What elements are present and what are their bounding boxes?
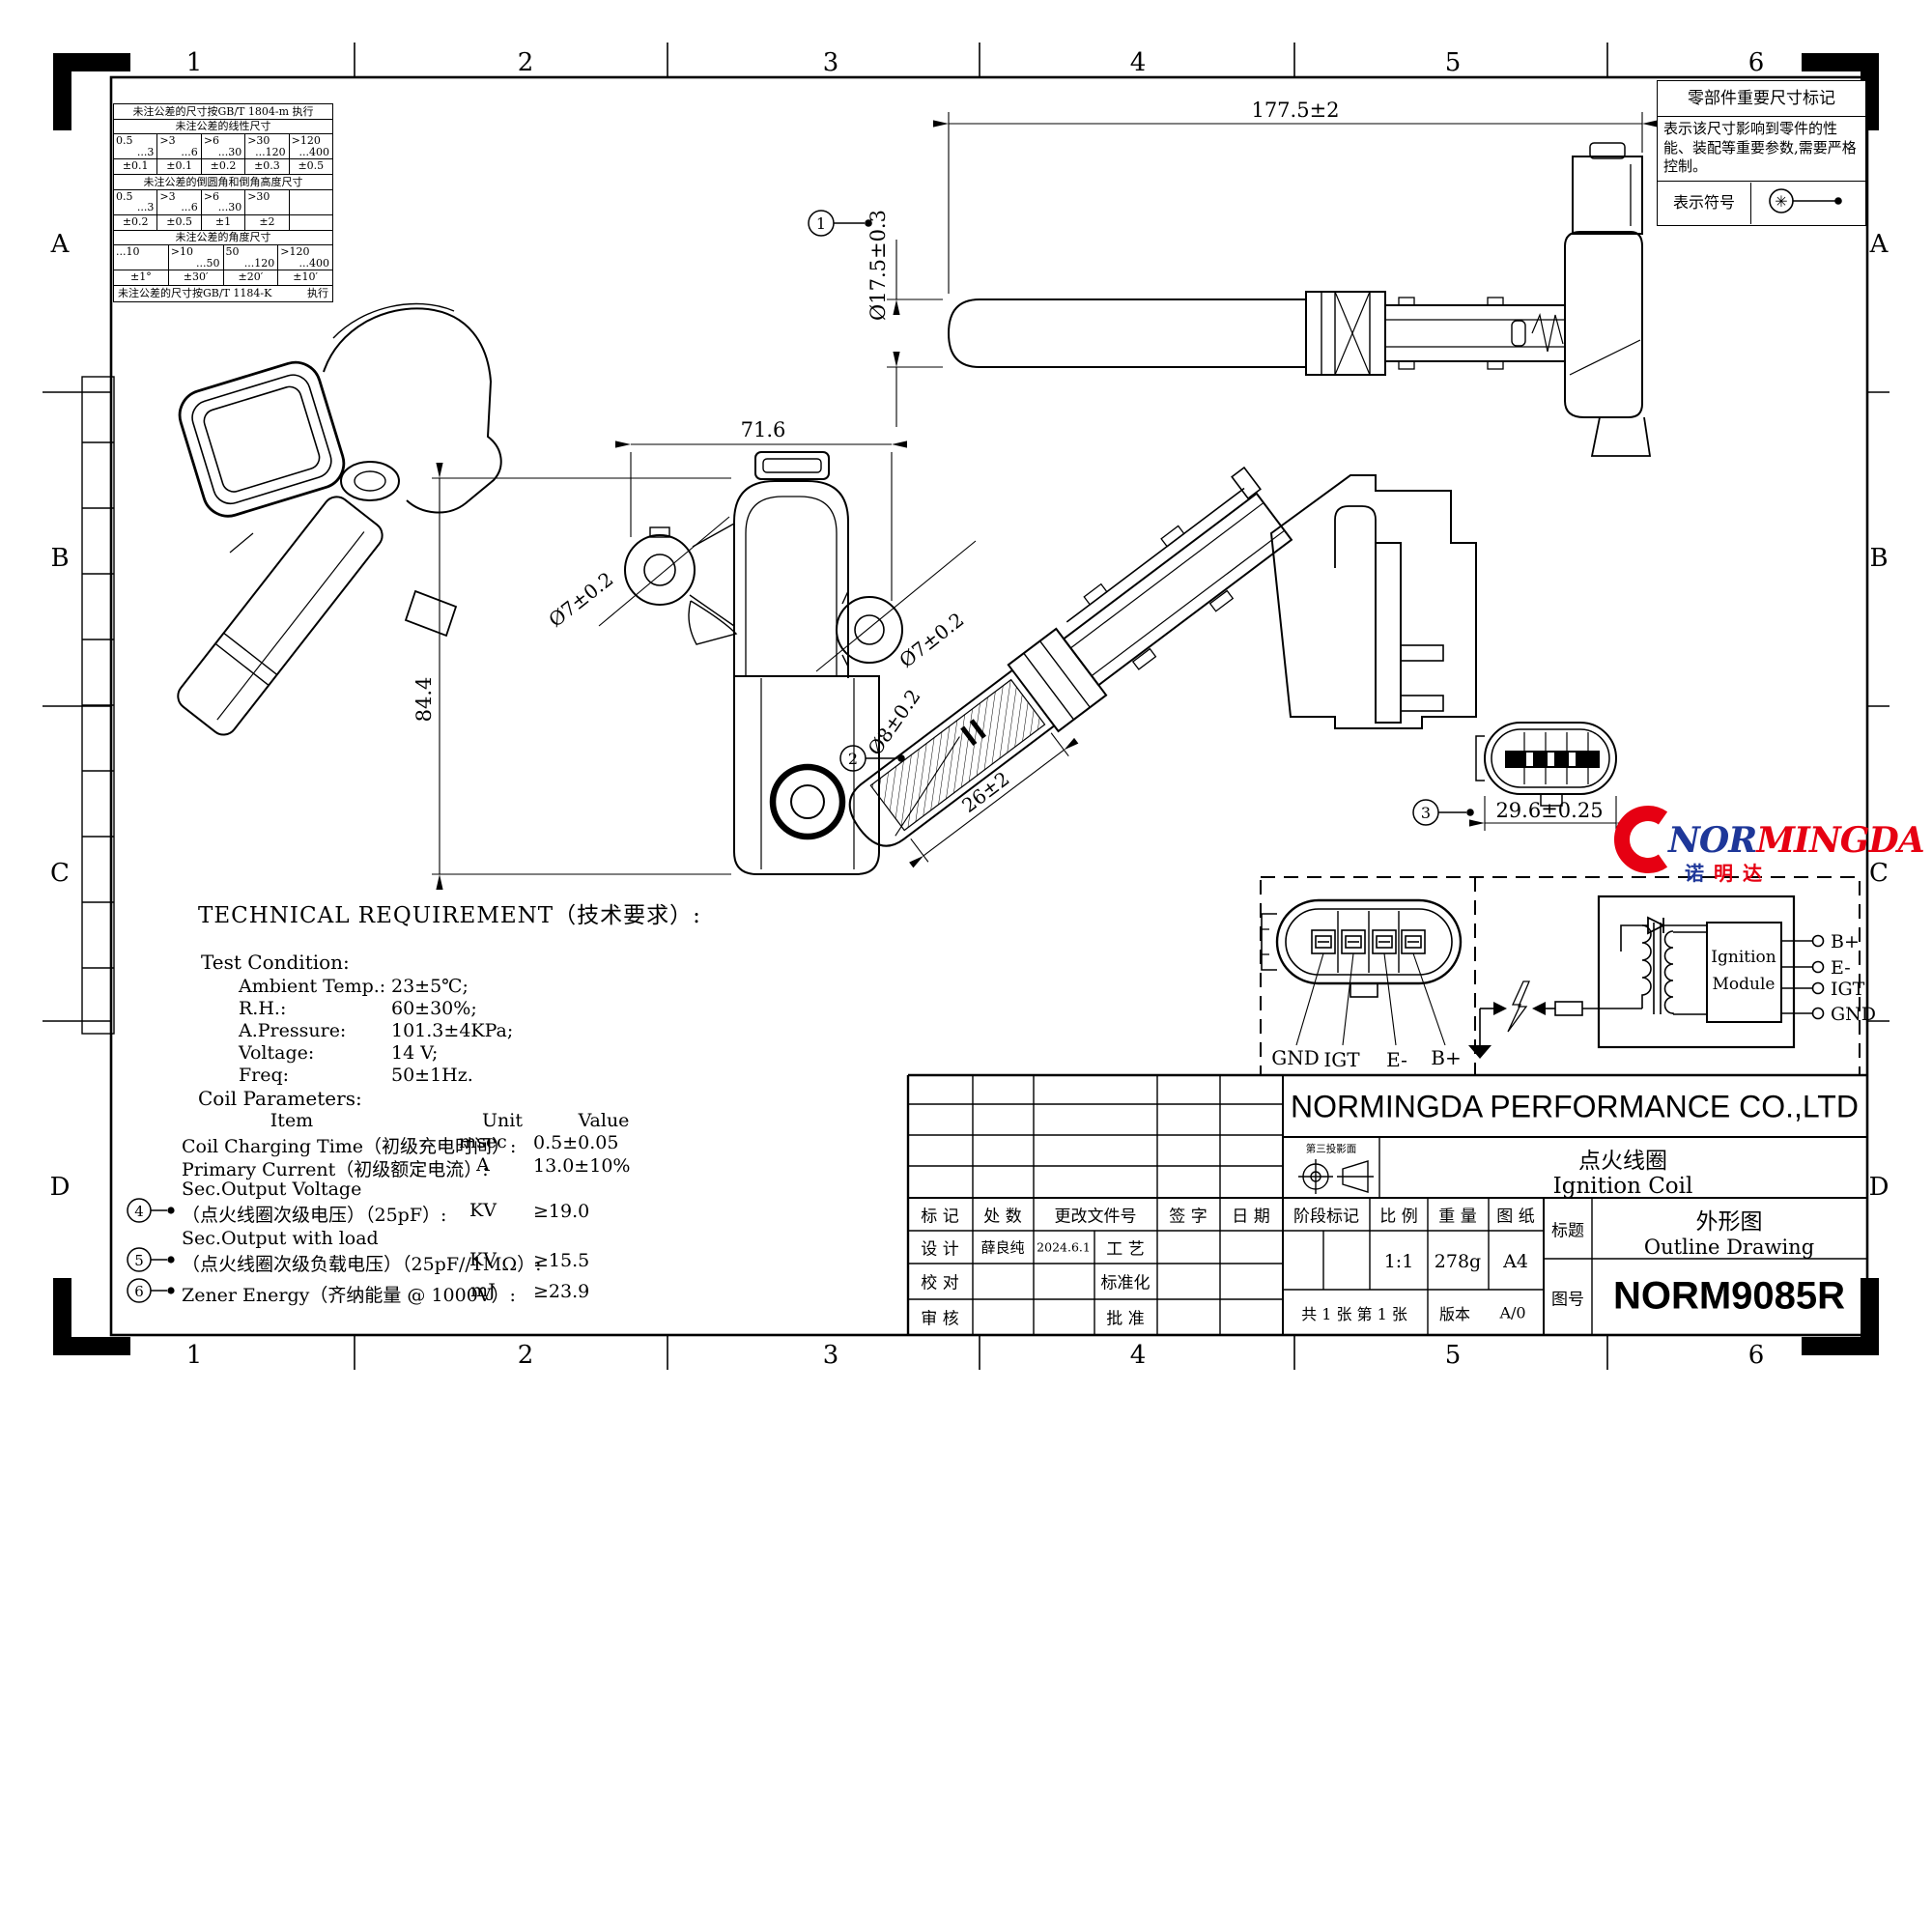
svg-text:5: 5	[134, 1252, 144, 1269]
svg-text:6: 6	[1748, 1341, 1765, 1370]
svg-text:6: 6	[134, 1283, 144, 1300]
terminal-e-: E-	[1831, 957, 1851, 979]
balloon-5: 5	[128, 1248, 175, 1271]
balloon-6: 6	[128, 1279, 175, 1302]
linear-tol-row: ±0.1 ±0.1 ±0.2 ±0.3 ±0.5	[114, 158, 332, 174]
svg-text:D: D	[1869, 1173, 1889, 1202]
chamfer-range-row: 0.5...3 >3...6 >6...30 >30	[114, 189, 332, 214]
pin-label-gnd: GND	[1271, 1046, 1320, 1069]
dim-hole-left: Ø7±0.2	[544, 567, 617, 632]
pin-label-e-: E-	[1386, 1048, 1407, 1071]
svg-text:4: 4	[134, 1203, 144, 1220]
drawing-title-en: Outline Drawing	[1644, 1236, 1814, 1259]
view-isometric	[173, 304, 501, 741]
svg-text:3: 3	[823, 1341, 839, 1370]
svg-text:3: 3	[1421, 804, 1431, 822]
designer-name: 薛良纯	[980, 1237, 1024, 1258]
view-tilted: 26±2 Ø8±0.2	[808, 447, 1616, 883]
col-item: Item	[270, 1110, 313, 1131]
ignition-module-box	[1707, 923, 1781, 1022]
svg-text:2: 2	[518, 1341, 534, 1370]
part-name-en: Ignition Coil	[1553, 1174, 1693, 1199]
svg-text:A: A	[50, 230, 71, 259]
coil-parameters-label: Coil Parameters:	[198, 1087, 362, 1110]
dim-tip-diameter: Ø8±0.2	[863, 685, 924, 759]
drawing-title-cn: 外形图	[1696, 1203, 1763, 1236]
weight-value: 278g	[1435, 1251, 1481, 1272]
dimension-lines	[432, 112, 1642, 874]
logo-mingda: MINGDA	[1756, 820, 1924, 861]
view-side	[949, 143, 1650, 456]
important-note-body: 表示该尺寸影响到零件的性能、装配等重要参数,需要严格控制。	[1658, 116, 1865, 181]
pinout-circuit-panel: GND IGT E- B+	[1261, 877, 1876, 1075]
svg-text:A: A	[1869, 230, 1889, 259]
part-name-cn: 点火线圈	[1578, 1142, 1667, 1175]
symbol-label: 表示符号	[1658, 183, 1751, 224]
balloon-1: 1	[809, 211, 872, 236]
dim-height: 84.4	[412, 677, 436, 723]
important-dimension-note: 零部件重要尺寸标记 表示该尺寸影响到零件的性能、装配等重要参数,需要严格控制。 …	[1657, 80, 1866, 226]
logo-nor: NOR	[1668, 820, 1756, 861]
svg-text:1: 1	[186, 1341, 203, 1370]
terminal-gnd: GND	[1831, 1004, 1876, 1025]
pin-label-b+: B+	[1431, 1046, 1461, 1069]
linear-tolerance-title: 未注公差的线性尺寸	[114, 120, 332, 134]
svg-text:2: 2	[848, 750, 858, 768]
linear-range-row: 0.5...3 >3...6 >6...30 >30...120 >120...…	[114, 133, 332, 158]
drawing-number: NORM9085R	[1613, 1275, 1845, 1319]
chamfer-tol-row: ±0.2 ±0.5 ±1 ±2	[114, 214, 332, 230]
dim-overall-length: 177.5±2	[1251, 99, 1339, 122]
svg-text:4: 4	[1130, 1341, 1147, 1370]
angle-tolerance-title: 未注公差的角度尺寸	[114, 231, 332, 245]
version-value: A/0	[1499, 1304, 1525, 1322]
svg-text:B: B	[50, 544, 69, 573]
svg-text:1: 1	[816, 214, 826, 233]
pin-label-igt: IGT	[1323, 1048, 1360, 1071]
corner-mark-bottom-left	[53, 1278, 130, 1355]
svg-text:B: B	[1869, 544, 1888, 573]
tech-req-heading: TECHNICAL REQUIREMENT（技术要求）:	[198, 896, 701, 929]
terminal-igt: IGT	[1831, 979, 1865, 1000]
logo-chinese: 诺明达	[1685, 858, 1772, 886]
tolerance-rule-bottom: 未注公差的尺寸按GB/T 1184-K 执行	[114, 285, 332, 301]
chamfer-tolerance-title: 未注公差的倒圆角和倒角高度尺寸	[114, 175, 332, 189]
svg-text:3: 3	[823, 48, 839, 77]
pinout-connector	[1262, 900, 1461, 1045]
connector-face-view	[1476, 723, 1616, 806]
dim-hole-right: Ø7±0.2	[895, 608, 968, 672]
svg-text:5: 5	[1445, 1341, 1462, 1370]
svg-text:C: C	[1869, 859, 1889, 888]
ground-symbol	[1468, 1045, 1492, 1059]
tolerance-rule-top: 未注公差的尺寸按GB/T 1804-m 执行	[114, 104, 332, 119]
angle-tol-row: ±1° ±30′ ±20′ ±10′	[114, 270, 332, 285]
third-angle-projection-icon	[1298, 1159, 1374, 1194]
dim-connector-width: 29.6±0.25	[1495, 799, 1603, 822]
svg-text:Module: Module	[1713, 975, 1776, 994]
test-condition-label: Test Condition:	[201, 951, 350, 974]
design-date: 2024.6.1	[1037, 1240, 1091, 1255]
terminal-b+: B+	[1831, 931, 1860, 952]
important-note-title: 零部件重要尺寸标记	[1658, 81, 1865, 116]
balloon-3: 3	[1413, 800, 1474, 825]
svg-text:5: 5	[1445, 48, 1462, 77]
col-unit: Unit	[482, 1110, 523, 1131]
svg-text:2: 2	[518, 48, 534, 77]
sheet-count: 共 1 张 第 1 张	[1301, 1301, 1407, 1324]
scale-value: 1:1	[1384, 1251, 1414, 1272]
svg-text:6: 6	[1748, 48, 1765, 77]
angle-range-row: ...10 >10...50 50...120 >120...400	[114, 244, 332, 270]
engineering-drawing-sheet: 1 2 3 4 5 6 1 2 3 4 5 6 A B C D A B C D	[0, 0, 1932, 1932]
svg-text:Ignition: Ignition	[1711, 948, 1776, 967]
svg-text:C: C	[50, 859, 70, 888]
view-front	[625, 452, 902, 874]
company-name: NORMINGDA PERFORMANCE CO.,LTD	[1291, 1090, 1859, 1125]
balloon-4: 4	[128, 1199, 175, 1222]
svg-text:4: 4	[1130, 48, 1147, 77]
dim-width: 71.6	[741, 418, 786, 441]
zone-col-label: 1	[186, 48, 203, 77]
svg-text:D: D	[50, 1173, 71, 1202]
important-dimension-symbol-icon: ✳	[1760, 182, 1857, 220]
pinout-labels: GND IGT E- B+	[1271, 1046, 1461, 1071]
col-value: Value	[579, 1110, 630, 1131]
svg-text:✳: ✳	[1775, 192, 1787, 211]
paper-size-value: A4	[1503, 1251, 1528, 1272]
margin-scale-strip	[82, 377, 114, 1034]
tolerance-table: 未注公差的尺寸按GB/T 1804-m 执行 未注公差的线性尺寸 0.5...3…	[113, 103, 333, 302]
ignition-circuit	[1599, 896, 1824, 1047]
